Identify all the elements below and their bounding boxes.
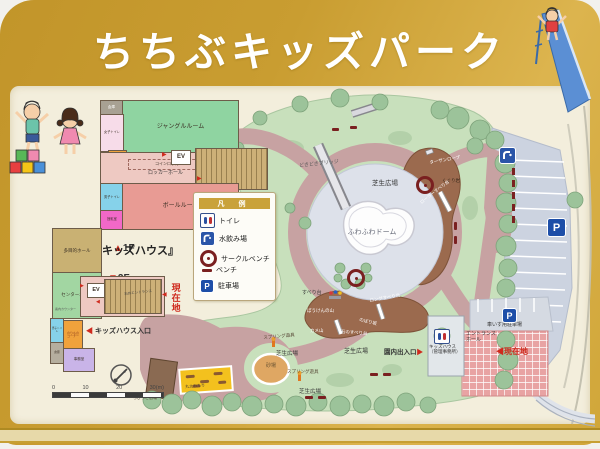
legend-row-parking: P 駐車場 [200,279,239,293]
kids-house-office-label: キッズハウス （管理事務所） [429,344,461,355]
toilet-icon-map [434,329,450,344]
elevator-2f: EV [87,283,105,298]
adventure-hill-label: ぼうけんの山 [307,308,334,313]
map-current-location-arrow: ◀ [496,347,504,356]
kame-hill-label: カメ山 [310,328,324,333]
parking-icon-main: P [547,218,566,237]
slide-label: すべり台 [302,291,322,297]
legend-row-bench: ベンチ [200,265,237,275]
lawn-label-1: 芝生広場 [372,180,398,188]
current-location-2f: 現在地 [170,283,181,313]
stairs-2f [104,279,162,314]
toilet-icon [200,213,215,228]
parking-icon: P [200,279,214,293]
sign-board-bottom-edge [0,428,600,443]
room-nursing: 授乳室 [100,210,124,230]
park-title: ちちぶキッズパーク [0,18,600,78]
spring-toy-label-2: スプリング遊具 [287,369,319,374]
wheelchair-parking-label: 車いす用駐車場 [487,323,522,329]
parking-icon-wheelchair: P [502,308,517,323]
lawn-label-3: 芝生広場 [344,349,368,356]
log-play-area [179,366,233,394]
room-storage-2f: 倉庫 [50,342,64,364]
legend-row-fountain: 水飲み場 [200,231,247,246]
fountain-icon-map [499,147,516,164]
room-womens-toilet-1f: 女子トイレ [100,114,124,152]
kids-house-entrance: ◀ キッズハウス入口 [86,320,151,337]
lawn-label-2: 芝生広場 [276,351,298,357]
park-exit-arrow: ▶ [417,349,424,356]
park-exit-label: 園内出入口▶ [384,341,423,356]
arrow-2f-a: ▶ [80,284,84,290]
building-name: 『キッズハウス』 [90,245,180,258]
room-office-2f: 事務室 [63,348,95,372]
entrance-hall-label: エントランス ホール [466,332,496,344]
elevator-1f: EV [171,150,191,165]
fountain-icon [200,231,215,246]
room-multipurpose-hall: 多目的ホール [52,228,102,274]
sandbox-label: 砂場 [255,364,287,370]
current-location-2f-arrow: ◀ [162,292,167,299]
legend-header: 凡 例 [199,198,270,209]
compass-icon [108,362,134,393]
lawn-label-4: 芝生広場 [299,389,321,395]
circle-bench-icon-1 [416,176,434,194]
park-exit-text: 園内出入口 [384,349,417,356]
arrow-1f-a: ▶ [162,152,167,159]
bench-icon [202,269,212,272]
slide-illustration [528,4,598,119]
info-counter-label: 案内カウンター [55,308,76,312]
legend-row-toilet: トイレ [200,213,240,228]
dome-label: ふわふわドーム [332,229,412,237]
legend-box: 凡 例 トイレ 水飲み場 サークルベンチ ベンチ P 駐車場 [193,192,276,301]
park-sign-photo: ちちぶキッズパーク [0,0,600,449]
locker-hall-label: ロッカーホール [148,171,183,177]
room-mens-toilet-2f: 男子トイレ [50,318,64,344]
map-current-location: ◀現在地 [496,338,528,357]
kids-illustration [2,90,97,190]
room-mens-toilet-1f: 男子トイレ [100,183,124,212]
room-jungle: ジャングルルーム [122,100,239,154]
circle-bench-icon-2 [347,269,365,287]
map-current-location-text: 現在地 [504,347,528,356]
arrow-2f-b: ◀ [96,300,100,306]
room-ride-corner: のりもの コーナー [63,320,83,350]
